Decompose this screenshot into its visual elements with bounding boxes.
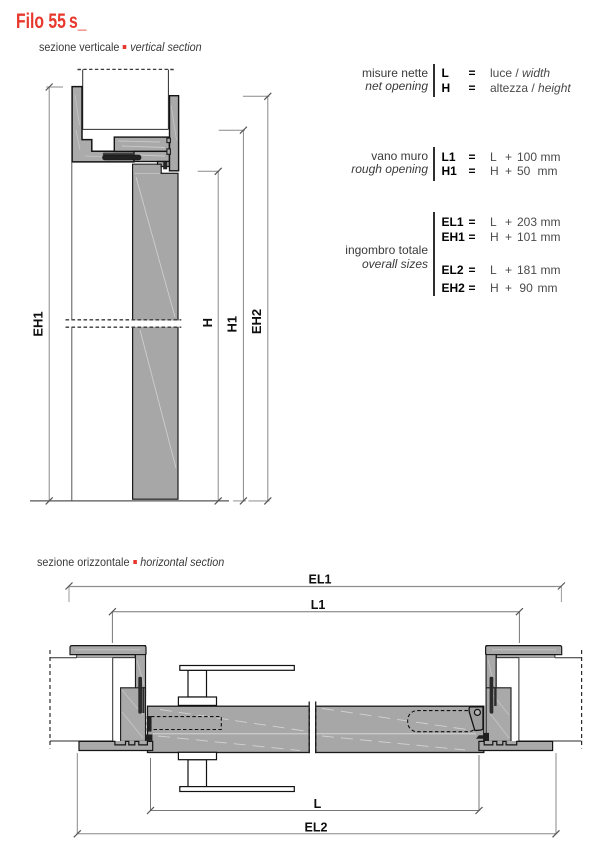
svg-text:EH2: EH2: [249, 309, 264, 334]
svg-text:EL2: EL2: [305, 820, 328, 834]
svg-text:EH1: EH1: [31, 311, 46, 336]
svg-text:EL1: EL1: [309, 573, 332, 587]
svg-text:H: H: [200, 318, 215, 327]
svg-text:L: L: [314, 797, 322, 811]
svg-text:L1: L1: [311, 598, 326, 612]
svg-text:H1: H1: [225, 316, 240, 333]
